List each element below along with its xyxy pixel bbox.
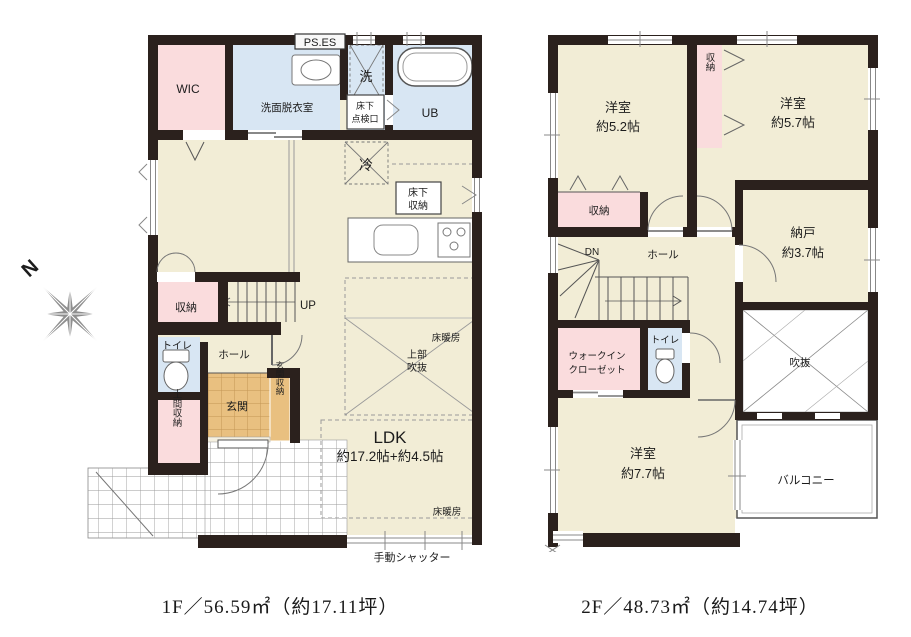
kitchen-counter: [348, 218, 477, 262]
label-toilet-2f: トイレ: [651, 335, 680, 346]
label-jobu-fukinuke-2: 吹抜: [407, 361, 427, 374]
label-yukashita-shuno-1: 床下: [408, 186, 428, 199]
label-wic2f-2: クローゼット: [568, 364, 625, 376]
balcony: [737, 420, 877, 518]
label-yoshitsu52-2: 約5.2帖: [596, 119, 640, 134]
label-ps-es: PS.ES: [304, 37, 336, 49]
bathtub-fixture: [398, 48, 472, 86]
compass-north-label: N: [18, 256, 43, 282]
approach-tiles: [88, 468, 206, 538]
label-ub: UB: [422, 106, 439, 120]
label-doma-shuno: 土間収納: [171, 388, 183, 428]
label-jobu-fukinuke-1: 上部: [407, 348, 427, 361]
floorplan-page: N: [0, 0, 911, 637]
label-hall-2f: ホール: [647, 249, 679, 261]
label-toilet-1f: トイレ: [162, 341, 192, 352]
label-tenkenko-2: 点検口: [351, 113, 378, 124]
toilet-fixture-2f: [656, 349, 674, 383]
label-wic: WIC: [176, 82, 200, 96]
label-yukashita-shuno-2: 収納: [408, 199, 428, 212]
label-nando-2: 約3.7帖: [782, 245, 824, 260]
porch-tiles: [205, 440, 347, 536]
label-yoshitsu57-1: 洋室: [780, 96, 806, 111]
label-nando-1: 納戸: [790, 226, 815, 240]
label-genkan: 玄関: [226, 399, 248, 413]
caption-2f: 2F／48.73㎡（約14.74坪）: [515, 592, 885, 622]
label-wic2f-1: ウォークイン: [568, 351, 625, 362]
floorplan-2f: 洋室 約5.2帖 収納 洋室 約5.7帖 収納 納戸 約3.7帖 DN ホール …: [543, 30, 885, 552]
label-genkan-shuno: 玄関収納: [275, 360, 285, 396]
label-senmen: 洗面脱衣室: [261, 101, 314, 114]
label-up: UP: [300, 300, 316, 312]
label-shutter: 手動シャッター: [374, 550, 451, 564]
label-dn: DN: [585, 247, 599, 258]
caption-1f: 1F／56.59㎡（約17.11坪）: [95, 592, 465, 622]
toilet-fixture-1f: [163, 350, 189, 390]
label-balcony: バルコニー: [777, 474, 834, 487]
stove-icon: [438, 223, 470, 257]
label-shuno-1f: 収納: [175, 301, 197, 314]
label-shuno-left: 収納: [589, 204, 610, 217]
label-yoshitsu77-1: 洋室: [630, 446, 656, 461]
label-fukinuke: 吹抜: [790, 356, 811, 369]
label-shuno-top: 収納: [704, 52, 716, 73]
floorplan-1f: PS.ES WIC 洗面脱衣室 洗 UB 床下 点検口 冷 床下 収納 収納 U…: [85, 30, 490, 575]
window-left-1f: [139, 160, 158, 235]
label-hall-1f: ホール: [218, 349, 250, 361]
label-ldk-size: 約17.2帖+約4.5帖: [337, 449, 444, 464]
2f-outside-cut: [735, 518, 878, 538]
label-ldk: LDK: [373, 428, 407, 447]
washbasin-fixture: [292, 55, 340, 85]
label-reizoko: 冷: [359, 157, 373, 173]
label-sentaku: 洗: [359, 69, 372, 84]
label-yukadanbo-upper: 床暖房: [432, 332, 461, 344]
label-yoshitsu77-2: 約7.7帖: [621, 466, 665, 481]
label-yoshitsu57-2: 約5.7帖: [771, 115, 815, 130]
label-yoshitsu52-1: 洋室: [605, 100, 631, 115]
label-tenkenko-1: 床下: [356, 100, 374, 111]
label-yukadanbo-lower: 床暖房: [433, 506, 462, 518]
